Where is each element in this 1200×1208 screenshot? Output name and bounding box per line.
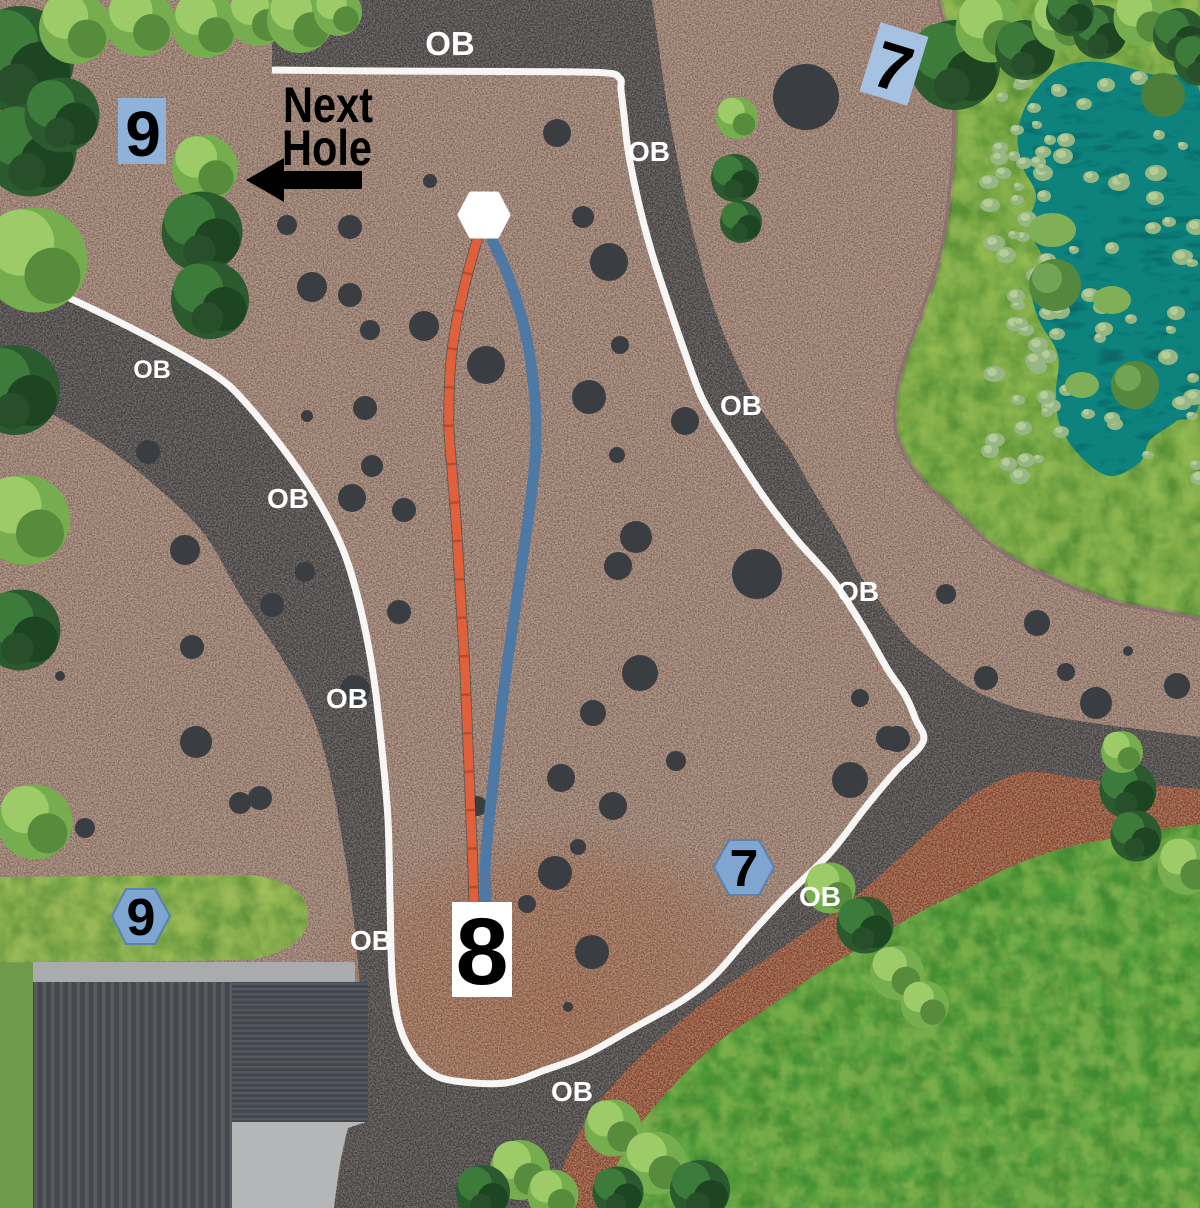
- svg-text:OB: OB: [267, 483, 309, 514]
- svg-text:7: 7: [730, 840, 759, 898]
- svg-text:OB: OB: [350, 925, 392, 956]
- svg-text:9: 9: [125, 98, 161, 170]
- svg-text:OB: OB: [837, 576, 879, 607]
- svg-text:OB: OB: [133, 356, 171, 384]
- svg-text:OB: OB: [799, 881, 841, 912]
- svg-text:9: 9: [127, 889, 156, 947]
- svg-text:OB: OB: [628, 136, 670, 167]
- svg-text:OB: OB: [551, 1076, 593, 1107]
- svg-text:OB: OB: [425, 25, 475, 62]
- svg-text:OB: OB: [720, 390, 762, 421]
- svg-text:Hole: Hole: [282, 120, 372, 176]
- svg-text:8: 8: [456, 899, 509, 1005]
- svg-text:OB: OB: [326, 683, 368, 714]
